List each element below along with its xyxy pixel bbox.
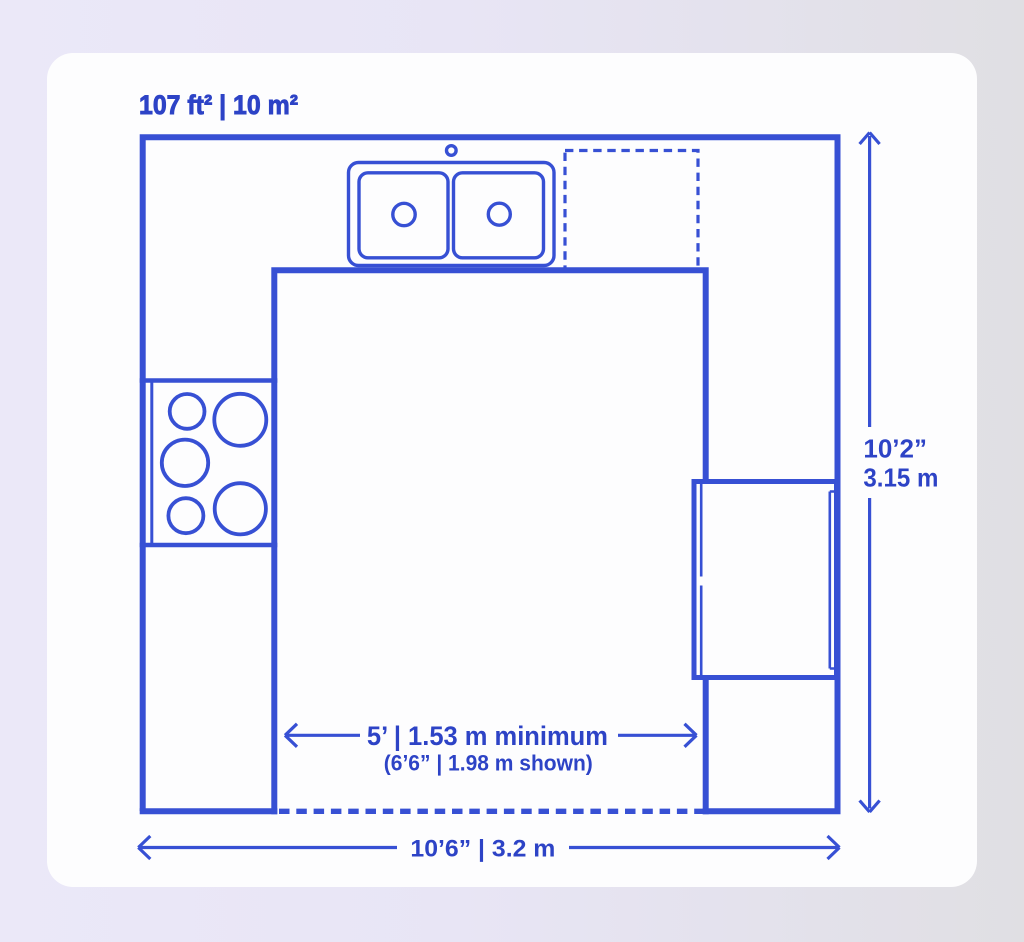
svg-text:5’ | 1.53 m minimum: 5’ | 1.53 m minimum [367,721,608,751]
svg-text:(6’6” | 1.98 m shown): (6’6” | 1.98 m shown) [384,751,593,776]
svg-text:3.15 m: 3.15 m [863,462,938,492]
svg-text:107 ft² | 10 m²: 107 ft² | 10 m² [139,90,298,120]
svg-text:10’6” | 3.2 m: 10’6” | 3.2 m [410,835,555,862]
svg-text:10’2”: 10’2” [863,434,927,464]
